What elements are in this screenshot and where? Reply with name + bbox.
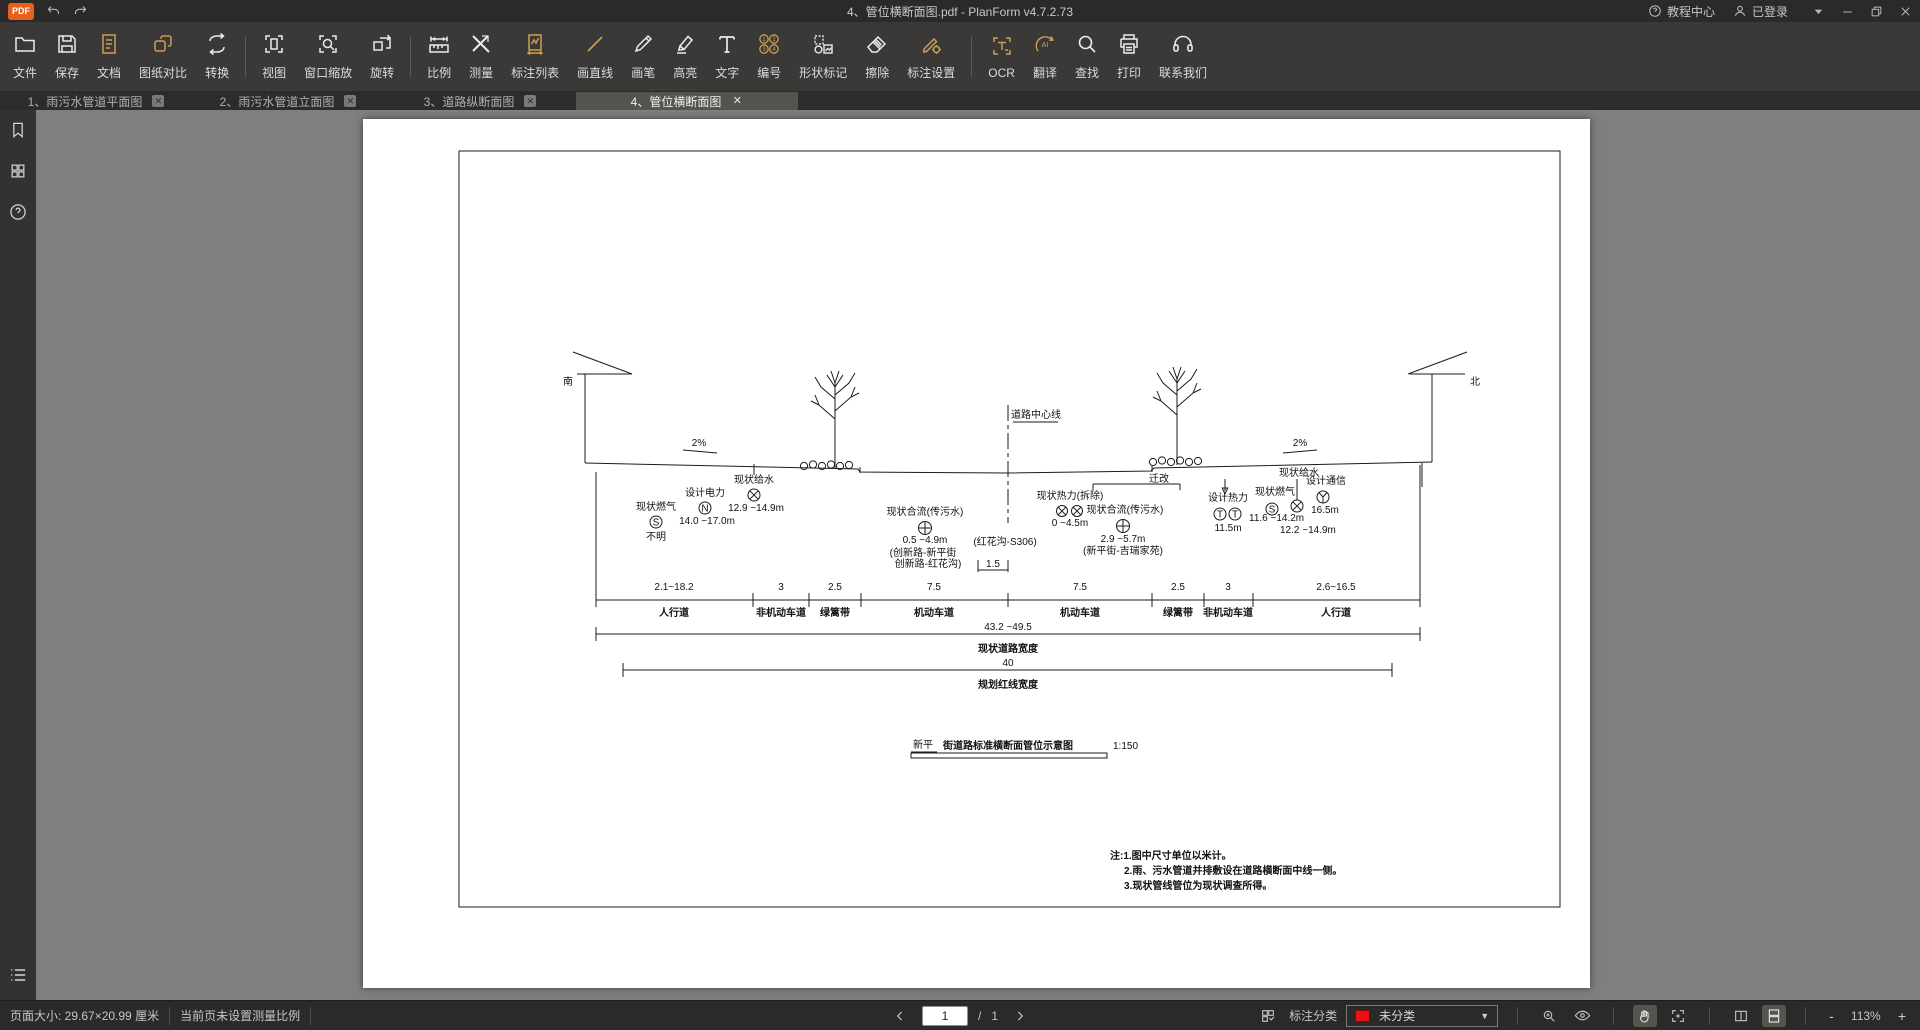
svg-text:2.5: 2.5: [828, 582, 842, 593]
toolbar-document-button[interactable]: 文档: [88, 22, 130, 91]
svg-text:11.5m: 11.5m: [1214, 523, 1241, 534]
tree-left: [811, 371, 859, 469]
login-label: 已登录: [1752, 3, 1788, 20]
toolbar-separator: [410, 36, 411, 77]
zoom-in-button[interactable]: +: [1894, 1008, 1910, 1024]
continuous-scroll-view-icon[interactable]: [1762, 1005, 1786, 1027]
pen-icon: [631, 32, 655, 59]
svg-text:2.9 ~5.7m: 2.9 ~5.7m: [1101, 534, 1146, 545]
toolbar-view-button[interactable]: 视图: [253, 22, 295, 91]
svg-text:T: T: [1217, 510, 1223, 521]
tab-road-profile[interactable]: 3、道路纵断面图 ✕: [384, 92, 576, 110]
svg-text:现状道路宽度: 现状道路宽度: [978, 642, 1039, 655]
document-icon: [97, 32, 121, 59]
svg-text:N: N: [701, 504, 708, 515]
drawing-title: 新平 街道路标准横断面管位示意图 1:150: [911, 738, 1138, 758]
measure-scale-hint: 当前页未设置测量比例: [180, 1007, 300, 1024]
svg-text:16.5m: 16.5m: [1311, 505, 1339, 516]
svg-text:2%: 2%: [1293, 438, 1308, 449]
menu-caret-icon[interactable]: [1812, 5, 1825, 18]
convert-icon: [205, 32, 229, 59]
svg-text:0 ~4.5m: 0 ~4.5m: [1052, 518, 1088, 529]
svg-text:现状燃气: 现状燃气: [1255, 485, 1295, 498]
save-icon: [55, 32, 79, 59]
facing-pages-view-icon[interactable]: [1729, 1005, 1753, 1027]
toolbar-text-button[interactable]: 文字: [706, 22, 748, 91]
drawing-frame: [459, 151, 1560, 907]
svg-text:40: 40: [1002, 658, 1014, 669]
drawing-notes: 注:1.图中尺寸单位以米计。 2.雨、污水管道并排敷设在道路横断面中线一侧。 3…: [1110, 849, 1342, 892]
compare-icon: [151, 32, 175, 59]
svg-text:2.5: 2.5: [1171, 582, 1185, 593]
hand-pan-tool-icon[interactable]: [1633, 1005, 1657, 1027]
toolbar-measure-button[interactable]: 测量: [460, 22, 502, 91]
thumbnails-grid-icon[interactable]: [8, 161, 28, 186]
cross-section-drawing: 南 北 2% 2%: [363, 119, 1590, 988]
utility-combined-sewer-center: 现状合流(传污水) 0.5 ~4.9m (红花沟-S306) (创新路-新平街 …: [887, 505, 1037, 572]
slope-label-left: 2%: [683, 438, 717, 453]
svg-text:人行道: 人行道: [1321, 606, 1351, 619]
svg-text:3.现状管线管位为现状调查所得。: 3.现状管线管位为现状调查所得。: [1124, 879, 1272, 892]
tab-plan-view[interactable]: 1、雨污水管道平面图 ✕: [0, 92, 192, 110]
number-icon: 1234: [757, 32, 781, 59]
window-zoom-icon: [316, 32, 340, 59]
page-total: 1: [991, 1009, 998, 1023]
svg-text:机动车道: 机动车道: [1060, 606, 1100, 619]
visibility-eye-icon[interactable]: [1570, 1005, 1594, 1027]
direction-label: 北: [1470, 376, 1480, 388]
window-title: 4、管位横断面图.pdf - PlanForm v4.7.2.73: [0, 3, 1920, 20]
tab-pipe-cross-section[interactable]: 4、管位横断面图 ✕: [576, 92, 798, 110]
next-page-icon[interactable]: [1008, 1005, 1032, 1027]
svg-text:0.5 ~4.9m: 0.5 ~4.9m: [903, 535, 948, 546]
account-status[interactable]: 已登录: [1733, 3, 1788, 20]
svg-text:绿篱带: 绿篱带: [820, 606, 850, 619]
svg-text:S: S: [653, 518, 660, 529]
svg-text:2.雨、污水管道并排敷设在道路横断面中线一侧。: 2.雨、污水管道并排敷设在道路横断面中线一侧。: [1124, 864, 1342, 877]
translate-icon: AI: [1033, 32, 1057, 59]
annotation-settings-icon: [919, 32, 943, 59]
measure-icon: [469, 32, 493, 59]
user-icon: [1733, 4, 1747, 18]
svg-text:现状给水: 现状给水: [734, 473, 774, 486]
hedge-right: [1149, 457, 1201, 466]
help-circle-icon: [1648, 4, 1662, 18]
restore-button[interactable]: [1870, 5, 1883, 18]
page-navigation: / 1: [888, 1005, 1032, 1027]
centerline-label: 道路中心线: [1011, 408, 1061, 421]
svg-text:现状燃气: 现状燃气: [636, 500, 676, 513]
svg-text:非机动车道: 非机动车道: [1203, 606, 1253, 619]
class-color-swatch: [1355, 1010, 1370, 1022]
page-divider: /: [978, 1009, 981, 1023]
toolbar-line-button[interactable]: 画直线: [568, 22, 622, 91]
print-icon: [1117, 32, 1141, 59]
direction-label: 南: [563, 375, 573, 388]
status-bar: 页面大小: 29.67×20.99 厘米 当前页未设置测量比例 / 1 标注分类…: [0, 1000, 1920, 1030]
svg-text:12.2 ~14.9m: 12.2 ~14.9m: [1280, 525, 1336, 536]
annotation-class-icon: [1256, 1005, 1280, 1027]
tree-right: [1153, 367, 1201, 465]
close-button[interactable]: [1899, 5, 1912, 18]
pdf-page[interactable]: 南 北 2% 2%: [363, 119, 1590, 988]
svg-text:43.2 ~49.5: 43.2 ~49.5: [984, 622, 1032, 633]
toolbar-annotation-settings-button[interactable]: 标注设置: [898, 22, 964, 91]
svg-text:现状热力(拆除): 现状热力(拆除): [1037, 489, 1104, 502]
svg-text:机动车道: 机动车道: [914, 606, 954, 619]
right-direction-marker: 北: [1408, 352, 1480, 462]
toolbar-find-button[interactable]: 查找: [1066, 22, 1108, 91]
svg-text:2.6~16.5: 2.6~16.5: [1316, 582, 1356, 593]
tab-close-icon[interactable]: ✕: [344, 95, 356, 107]
main-toolbar: 文件 保存 文档 图纸对比 转换 视图 窗口缩放 旋转 比例 测量 标注列表 画…: [0, 22, 1920, 92]
tab-elevation-view[interactable]: 2、雨污水管道立面图 ✕: [192, 92, 384, 110]
scale-icon: [427, 32, 451, 59]
utility-heat-design: 设计热力 T T 11.5m: [1208, 479, 1248, 534]
toolbar-ocr-button[interactable]: OCR: [979, 22, 1024, 91]
dimension-planned-red-line-width: 40 规划红线宽度: [623, 658, 1392, 691]
svg-text:3: 3: [778, 582, 784, 593]
svg-text:7.5: 7.5: [1073, 582, 1087, 593]
toolbar-scale-button[interactable]: 比例: [418, 22, 460, 91]
page-size-info: 页面大小: 29.67×20.99 厘米: [10, 1007, 159, 1024]
left-sidebar: [0, 110, 36, 1000]
class-value: 未分类: [1379, 1007, 1415, 1024]
folder-icon: [13, 32, 37, 59]
bookmark-icon[interactable]: [8, 120, 28, 145]
toolbar-erase-button[interactable]: 擦除: [856, 22, 898, 91]
svg-text:(红花沟-S306): (红花沟-S306): [973, 535, 1036, 548]
drawing-scale: 1:150: [1113, 741, 1138, 752]
contact-icon: [1171, 32, 1195, 59]
utility-gas-existing-left: 现状燃气 S 不明: [636, 500, 676, 543]
zoom-level: 113%: [1847, 1009, 1885, 1023]
title-bar: 4、管位横断面图.pdf - PlanForm v4.7.2.73 PDF 教程…: [0, 0, 1920, 22]
road-centerline: 道路中心线: [1008, 405, 1061, 523]
tab-close-icon[interactable]: ✕: [152, 95, 164, 107]
svg-text:1.5: 1.5: [986, 559, 1000, 570]
toolbar-contact-button[interactable]: 联系我们: [1150, 22, 1216, 91]
svg-text:11.6 ~14.2m: 11.6 ~14.2m: [1249, 513, 1304, 524]
utility-power-design: 设计电力 N 14.0 ~17.0m: [679, 486, 735, 527]
minimize-button[interactable]: [1841, 5, 1854, 18]
utility-telecom-design: 设计通信 16.5m: [1306, 463, 1422, 516]
svg-text:12.9 ~14.9m: 12.9 ~14.9m: [728, 503, 784, 514]
svg-text:设计电力: 设计电力: [685, 486, 725, 499]
svg-text:绿篱带: 绿篱带: [1163, 606, 1193, 619]
highlight-icon: [673, 32, 697, 59]
redo-icon[interactable]: [73, 4, 88, 19]
toolbar-separator: [971, 36, 972, 77]
tutorial-label: 教程中心: [1667, 3, 1715, 20]
toolbar-highlight-button[interactable]: 高亮: [664, 22, 706, 91]
svg-text:创新路-红花沟): 创新路-红花沟): [895, 557, 962, 570]
svg-text:现状合流(传污水): 现状合流(传污水): [1087, 503, 1164, 516]
toolbar-number-button[interactable]: 1234 编号: [748, 22, 790, 91]
erase-icon: [865, 32, 889, 59]
annotation-class-label: 标注分类: [1289, 1007, 1337, 1024]
zoom-out-button[interactable]: -: [1825, 1008, 1838, 1024]
svg-text:街道路标准横断面管位示意图: 街道路标准横断面管位示意图: [942, 739, 1073, 752]
view-icon: [262, 32, 286, 59]
svg-text:注:1.图中尺寸单位以米计。: 注:1.图中尺寸单位以米计。: [1110, 849, 1232, 862]
utility-combined-sewer-right: 现状合流(传污水) 2.9 ~5.7m (新平街-吉瑞家苑): [1083, 503, 1163, 557]
toolbar-separator: [245, 36, 246, 77]
toolbar-convert-button[interactable]: 转换: [196, 22, 238, 91]
toolbar-print-button[interactable]: 打印: [1108, 22, 1150, 91]
svg-text:(新平街-吉瑞家苑): (新平街-吉瑞家苑): [1083, 544, 1163, 557]
toolbar-annotation-list-button[interactable]: 标注列表: [502, 22, 568, 91]
svg-text:迁改: 迁改: [1149, 472, 1169, 485]
svg-text:设计通信: 设计通信: [1306, 474, 1346, 487]
dimension-existing-road-width: 43.2 ~49.5 现状道路宽度: [596, 622, 1420, 655]
annotation-panel-list-icon[interactable]: [8, 965, 28, 990]
toolbar-file-button[interactable]: 文件: [4, 22, 46, 91]
svg-text:14.0 ~17.0m: 14.0 ~17.0m: [679, 516, 735, 527]
annotation-list-icon: [523, 32, 547, 59]
caret-down-icon: ▼: [1480, 1011, 1489, 1021]
svg-text:3: 3: [1225, 582, 1231, 593]
toolbar-pen-button[interactable]: 画笔: [622, 22, 664, 91]
toolbar-translate-button[interactable]: AI 翻译: [1024, 22, 1066, 91]
tutorial-center[interactable]: 教程中心: [1648, 3, 1715, 20]
document-viewer[interactable]: 南 北 2% 2%: [36, 110, 1920, 1000]
shape-mark-icon: [811, 32, 835, 59]
svg-text:2.1~18.2: 2.1~18.2: [654, 582, 694, 593]
svg-text:非机动车道: 非机动车道: [756, 606, 806, 619]
toolbar-rotate-button[interactable]: 旋转: [361, 22, 403, 91]
help-icon[interactable]: [8, 202, 28, 227]
left-direction-marker: 南: [563, 352, 632, 463]
snapshot-area-icon[interactable]: [1666, 1005, 1690, 1027]
svg-text:新平: 新平: [913, 738, 933, 751]
svg-text:规划红线宽度: 规划红线宽度: [978, 678, 1039, 691]
toolbar-shape-mark-button[interactable]: 形状标记: [790, 22, 856, 91]
svg-text:现状合流(传污水): 现状合流(传污水): [887, 505, 964, 518]
svg-text:2%: 2%: [692, 438, 707, 449]
app-logo: PDF: [8, 3, 34, 20]
toolbar-save-button[interactable]: 保存: [46, 22, 88, 91]
utility-water-existing-left: 现状给水 12.9 ~14.9m: [728, 464, 784, 514]
toolbar-window-zoom-button[interactable]: 窗口缩放: [295, 22, 361, 91]
prev-page-icon[interactable]: [888, 1005, 912, 1027]
tab-close-icon[interactable]: ✕: [731, 95, 743, 107]
svg-text:不明: 不明: [646, 531, 666, 543]
svg-text:AI: AI: [1041, 40, 1048, 49]
annotation-class-dropdown[interactable]: 未分类 ▼: [1346, 1005, 1498, 1027]
undo-icon[interactable]: [46, 4, 61, 19]
line-icon: [583, 32, 607, 59]
ocr-icon: [990, 34, 1014, 61]
zoom-area-icon[interactable]: [1537, 1005, 1561, 1027]
svg-text:T: T: [1232, 510, 1238, 521]
document-tabbar: 1、雨污水管道平面图 ✕ 2、雨污水管道立面图 ✕ 3、道路纵断面图 ✕ 4、管…: [0, 92, 1920, 110]
svg-text:人行道: 人行道: [659, 606, 689, 619]
find-icon: [1075, 32, 1099, 59]
relocate-label: 迁改: [1149, 472, 1169, 485]
svg-text:7.5: 7.5: [927, 582, 941, 593]
text-icon: [715, 32, 739, 59]
rotate-icon: [370, 32, 394, 59]
svg-text:设计热力: 设计热力: [1208, 491, 1248, 504]
page-number-input[interactable]: [922, 1006, 968, 1026]
slope-label-right: 2%: [1283, 438, 1317, 453]
svg-text:(创新路-新平街: (创新路-新平街: [890, 546, 957, 559]
tab-close-icon[interactable]: ✕: [524, 95, 536, 107]
toolbar-compare-button[interactable]: 图纸对比: [130, 22, 196, 91]
